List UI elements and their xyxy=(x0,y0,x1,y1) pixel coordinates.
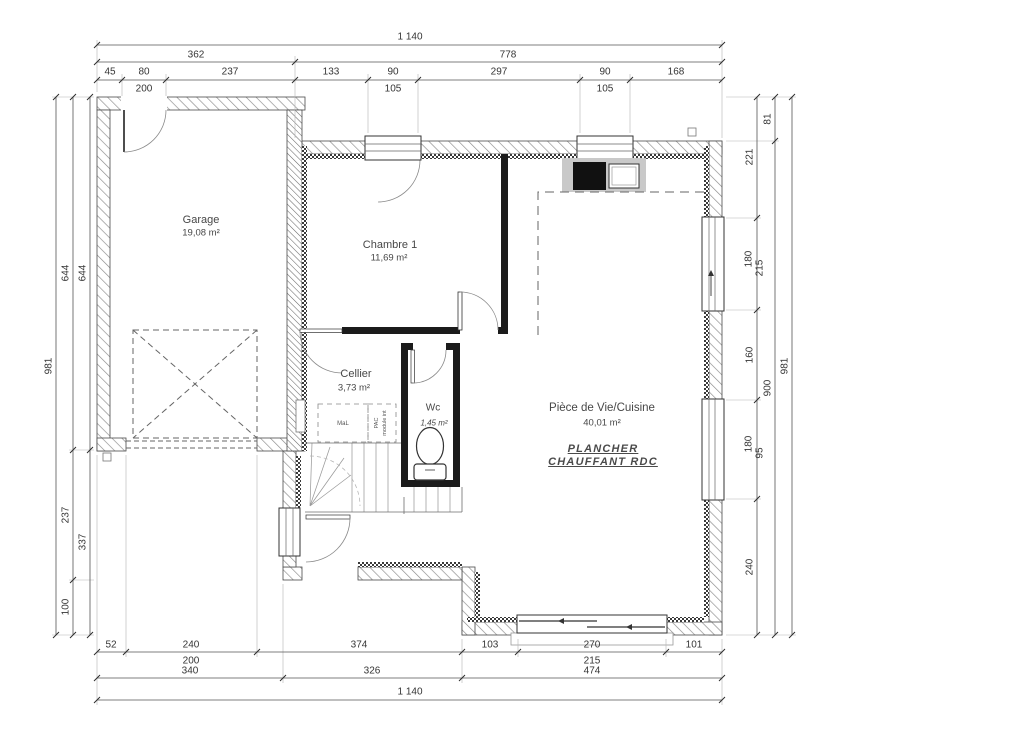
room-label-garage: Garage xyxy=(183,214,220,226)
kitchen-zone-dashed xyxy=(538,192,704,335)
pac-label-line2: module int xyxy=(382,410,388,435)
dim-label: 52 xyxy=(105,640,116,651)
dim-label: 374 xyxy=(351,640,368,651)
dim-label: 80 xyxy=(138,67,149,78)
room-area-chambre1: 11,69 m² xyxy=(371,253,408,264)
dim-label: 215 xyxy=(755,260,766,277)
room-label-chambre1: Chambre 1 xyxy=(363,239,417,251)
dim-label: 340 xyxy=(182,666,199,677)
dim-bottom-total: 1 140 xyxy=(397,687,422,698)
dim-label: 81 xyxy=(763,113,774,124)
dim-label: 297 xyxy=(491,67,508,78)
dim-label: 644 xyxy=(61,265,72,282)
room-area-piece-de-vie: 40,01 m² xyxy=(583,418,621,429)
dim-label: 270 xyxy=(584,640,601,651)
room-label-piece-de-vie: Pièce de Vie/Cuisine xyxy=(549,402,655,414)
dim-label: 168 xyxy=(668,67,685,78)
dim-label: 101 xyxy=(686,640,703,651)
washing-machine-label: MaL xyxy=(337,421,349,427)
heating-note-line2: CHAUFFANT RDC xyxy=(548,456,658,468)
floor-plan-page: Garage 19,08 m² Chambre 1 11,69 m² Celli… xyxy=(0,0,1024,735)
dim-label: 778 xyxy=(500,50,517,61)
dim-label: 100 xyxy=(61,599,72,616)
dim-label: 105 xyxy=(385,84,402,95)
dim-label: 90 xyxy=(599,67,610,78)
dim-label: 103 xyxy=(482,640,499,651)
extension-lines xyxy=(52,40,796,705)
dim-label: 45 xyxy=(104,67,115,78)
dim-label: 362 xyxy=(188,50,205,61)
toilet xyxy=(414,428,446,481)
dim-label: 337 xyxy=(78,534,89,551)
dim-label: 200 xyxy=(136,84,153,95)
dim-top-total: 1 140 xyxy=(397,32,422,43)
dim-label: 133 xyxy=(323,67,340,78)
room-label-cellier: Cellier xyxy=(340,368,371,380)
dim-right-outer: 981 xyxy=(780,358,791,375)
room-area-cellier: 3,73 m² xyxy=(338,383,370,394)
dim-label: 90 xyxy=(387,67,398,78)
room-label-wc: Wc xyxy=(426,403,440,414)
dim-label: 105 xyxy=(597,84,614,95)
dim-label: 326 xyxy=(364,666,381,677)
garage-door xyxy=(126,330,257,448)
floor-plan-drawing xyxy=(0,0,1024,735)
dim-label: 221 xyxy=(745,149,756,166)
heating-note-line1: PLANCHER xyxy=(568,443,639,455)
dim-label: 180 xyxy=(744,251,755,268)
dim-label: 900 xyxy=(763,380,774,397)
dim-label: 474 xyxy=(584,666,601,677)
dim-label: 237 xyxy=(222,67,239,78)
dim-label: 237 xyxy=(61,507,72,524)
room-area-garage: 19,08 m² xyxy=(182,228,220,239)
dim-label: 644 xyxy=(78,265,89,282)
dim-left-outer: 981 xyxy=(44,358,55,375)
dim-label: 240 xyxy=(745,559,756,576)
kitchen-unit xyxy=(562,158,646,192)
pac-label-line1: PAC xyxy=(374,418,380,429)
dim-label: 95 xyxy=(755,447,766,458)
dim-label: 240 xyxy=(183,640,200,651)
room-area-wc: 1,45 m² xyxy=(420,419,447,428)
dim-label: 180 xyxy=(744,436,755,453)
dim-label: 160 xyxy=(745,347,756,364)
